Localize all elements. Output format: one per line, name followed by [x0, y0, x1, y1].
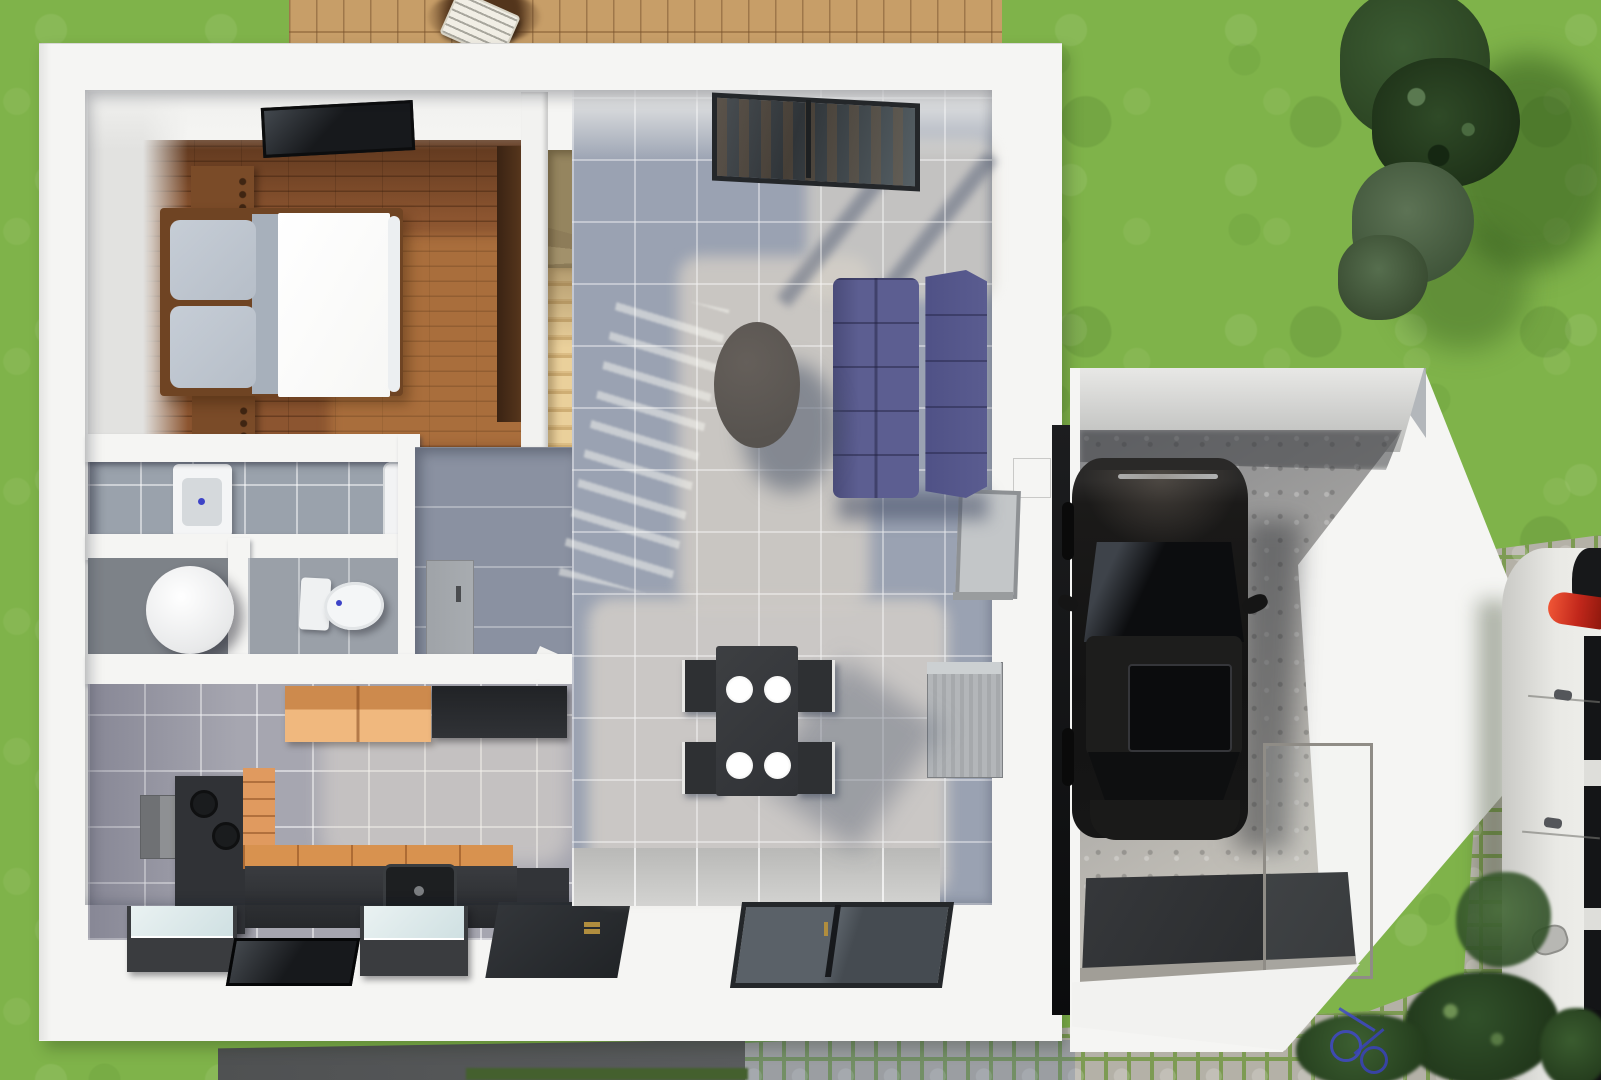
car-hood-shine	[1082, 470, 1240, 550]
coffee-table	[714, 322, 800, 448]
kitchen-window	[226, 938, 360, 986]
stair-wall	[521, 92, 548, 449]
hob-burner	[212, 822, 240, 850]
entry-door-handle	[584, 922, 600, 927]
paver-blue-tint	[745, 1040, 1075, 1080]
sofa-backrest	[917, 270, 987, 498]
faucet	[414, 886, 424, 896]
washbasin-drain	[198, 498, 205, 505]
appliance-lid-glass	[131, 906, 233, 938]
patio-door	[712, 93, 920, 192]
car-wheel	[1062, 728, 1074, 786]
car-wheel	[1062, 502, 1074, 560]
wall	[85, 534, 418, 560]
car-pillar	[1584, 760, 1601, 786]
plate	[726, 752, 753, 779]
entry-door	[485, 902, 630, 978]
plate	[726, 676, 753, 703]
door-handle	[456, 586, 461, 602]
appliance-lid-glass	[364, 906, 464, 940]
bathroom-floor	[88, 460, 402, 538]
skylight-window	[261, 100, 415, 158]
glass-balustrade	[1263, 743, 1373, 979]
car-trunk	[1090, 800, 1240, 840]
car-windshield	[1084, 542, 1244, 642]
window-handle	[824, 922, 828, 936]
plate	[764, 676, 791, 703]
house-left-edge-shade	[39, 43, 51, 1040]
round-shower	[146, 566, 234, 654]
bed-pillow	[170, 306, 256, 388]
bed-footboard	[388, 216, 400, 392]
bicycle-wheel	[1360, 1046, 1388, 1074]
sofa-seat	[833, 278, 919, 498]
toilet-drain	[336, 600, 342, 606]
bottom-wall-face	[572, 848, 940, 906]
bed-pillow	[170, 220, 256, 300]
window-sill	[953, 592, 1013, 600]
car-rear-window	[1572, 548, 1601, 600]
radiator-top	[927, 662, 1001, 674]
black-car	[1068, 452, 1254, 847]
open-door-leaf	[426, 560, 474, 662]
dining-chair	[796, 660, 835, 712]
living-window	[730, 902, 954, 988]
bed-duvet	[278, 213, 390, 397]
hedge-strip	[466, 1068, 748, 1080]
bush	[1404, 972, 1559, 1080]
bush	[1540, 1008, 1601, 1080]
wall	[85, 654, 572, 684]
car-rear-window	[1088, 752, 1240, 804]
floor-plan-render	[0, 0, 1601, 1080]
wood-deck	[289, 0, 1002, 45]
radiator	[927, 662, 1003, 778]
bicycle-wheel	[1330, 1030, 1362, 1062]
car-sunroof	[1128, 664, 1232, 752]
dining-chair	[796, 742, 835, 794]
plate	[764, 752, 791, 779]
car-pillar	[1584, 908, 1601, 930]
hob-burner	[190, 790, 218, 818]
kitchen-wall-cabinet-dark	[432, 686, 567, 738]
patio-door-mullion	[806, 100, 811, 178]
kitchen-wall-cabinet-orange	[285, 686, 431, 742]
wall	[85, 434, 418, 462]
